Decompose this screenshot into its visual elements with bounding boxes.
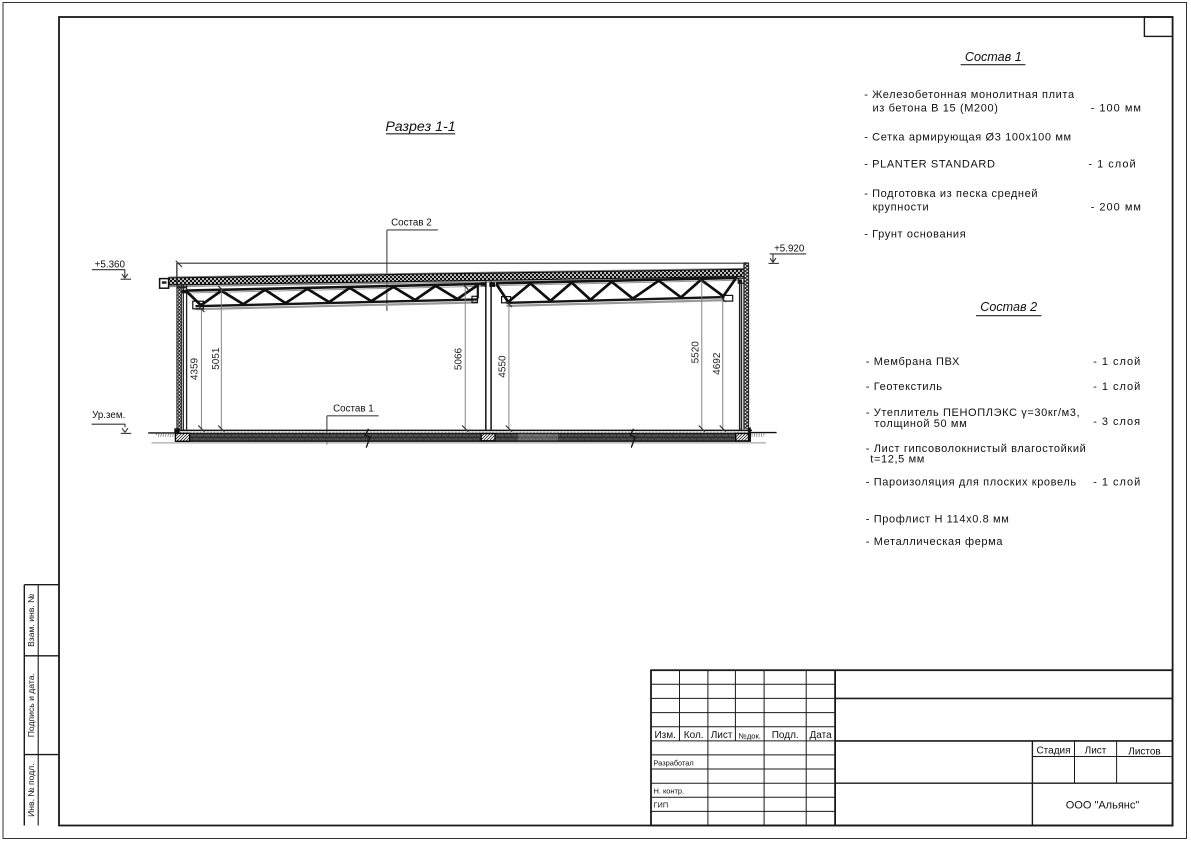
svg-text:толщиной 50 мм: толщиной 50 мм bbox=[874, 418, 967, 430]
svg-text:- Металлическая ферма: - Металлическая ферма bbox=[866, 536, 1004, 548]
svg-text:+5.920: +5.920 bbox=[774, 244, 805, 255]
svg-text:- Подготовка из песка средней: - Подготовка из песка средней bbox=[864, 188, 1038, 200]
svg-text:- 3 слоя: - 3 слоя bbox=[1093, 416, 1141, 428]
svg-text:- Профлист Н 114х0.8 мм: - Профлист Н 114х0.8 мм bbox=[866, 514, 1010, 526]
svg-text:- Мембрана ПВХ: - Мембрана ПВХ bbox=[866, 356, 960, 368]
svg-text:- Утеплитель ПЕНОПЛЭКС γ=30кг/: - Утеплитель ПЕНОПЛЭКС γ=30кг/м3, bbox=[866, 407, 1080, 419]
svg-text:крупности: крупности bbox=[873, 202, 930, 214]
svg-text:5051: 5051 bbox=[211, 347, 222, 370]
svg-text:- Пароизоляция для плоских кро: - Пароизоляция для плоских кровель bbox=[866, 477, 1077, 489]
svg-text:- Грунт основания: - Грунт основания bbox=[864, 229, 966, 241]
svg-text:Состав 2: Состав 2 bbox=[980, 300, 1037, 314]
svg-text:Состав 1: Состав 1 bbox=[333, 404, 374, 415]
svg-text:Состав 2: Состав 2 bbox=[391, 217, 432, 228]
svg-text:- 200 мм: - 200 мм bbox=[1091, 202, 1142, 214]
svg-text:- Сетка армирующая Ø3 100х100: - Сетка армирующая Ø3 100х100 мм bbox=[864, 131, 1072, 143]
svg-text:Дата: Дата bbox=[810, 730, 833, 741]
svg-text:4692: 4692 bbox=[712, 352, 723, 375]
svg-text:- 1 слой: - 1 слой bbox=[1093, 381, 1141, 393]
svg-text:5520: 5520 bbox=[691, 341, 702, 364]
svg-text:- 1 слой: - 1 слой bbox=[1093, 356, 1141, 368]
svg-text:- PLANTER STANDARD: - PLANTER STANDARD bbox=[864, 159, 995, 171]
svg-text:Разрез 1-1: Разрез 1-1 bbox=[385, 119, 455, 135]
svg-text:Состав 1: Состав 1 bbox=[965, 50, 1022, 64]
svg-text:t=12,5 мм: t=12,5 мм bbox=[870, 453, 925, 465]
svg-text:Стадия: Стадия bbox=[1036, 745, 1070, 756]
svg-text:Изм.: Изм. bbox=[654, 730, 675, 741]
svg-text:+5.360: +5.360 bbox=[95, 260, 126, 271]
svg-text:- Железобетонная монолитная п: - Железобетонная монолитная плита bbox=[864, 89, 1075, 101]
svg-text:5066: 5066 bbox=[454, 347, 465, 370]
svg-text:Кол.: Кол. bbox=[684, 730, 704, 741]
svg-text:Лист: Лист bbox=[1085, 745, 1107, 756]
svg-text:- 1 слой: - 1 слой bbox=[1088, 159, 1136, 171]
svg-text:Лист: Лист bbox=[711, 730, 733, 741]
svg-text:Взам. инв. №: Взам. инв. № bbox=[26, 594, 36, 647]
svg-text:Листов: Листов bbox=[1128, 746, 1161, 757]
svg-text:Ур.зем.: Ур.зем. bbox=[92, 410, 125, 421]
svg-text:из бетона В 15 (М200): из бетона В 15 (М200) bbox=[873, 103, 999, 115]
svg-text:Н. контр.: Н. контр. bbox=[654, 786, 685, 795]
svg-text:Разработал: Разработал bbox=[654, 758, 694, 767]
svg-text:ООО "Альянс": ООО "Альянс" bbox=[1066, 800, 1140, 812]
svg-text:Подл.: Подл. bbox=[772, 730, 799, 741]
svg-text:- 100 мм: - 100 мм bbox=[1091, 103, 1142, 115]
svg-text:4359: 4359 bbox=[190, 357, 201, 380]
svg-text:№док.: №док. bbox=[739, 732, 761, 741]
svg-text:- 1 слой: - 1 слой bbox=[1093, 477, 1141, 489]
svg-text:4550: 4550 bbox=[498, 355, 509, 378]
svg-text:Инв. № подл.: Инв. № подл. bbox=[26, 763, 36, 817]
svg-text:Подпись и дата.: Подпись и дата. bbox=[26, 673, 36, 737]
svg-text:ГИП: ГИП bbox=[654, 801, 669, 810]
svg-text:- Геотекстиль: - Геотекстиль bbox=[866, 381, 943, 393]
